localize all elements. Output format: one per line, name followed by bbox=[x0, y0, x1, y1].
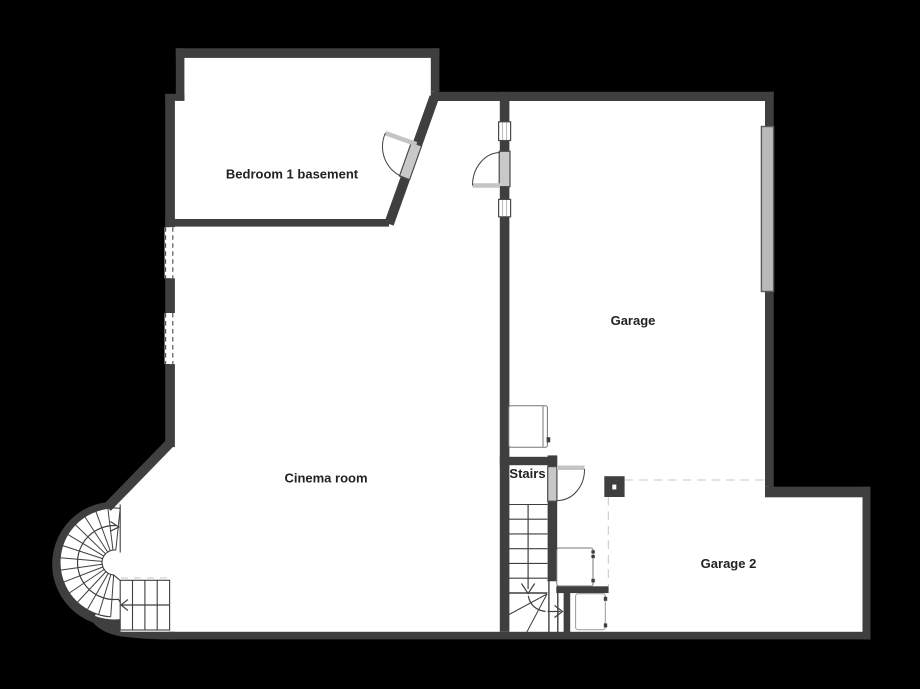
svg-text:Garage: Garage bbox=[611, 313, 656, 328]
svg-text:Cinema room: Cinema room bbox=[284, 471, 367, 486]
svg-text:Stairs: Stairs bbox=[509, 466, 545, 481]
svg-text:Garage 2: Garage 2 bbox=[701, 556, 757, 571]
svg-text:Bedroom 1 basement: Bedroom 1 basement bbox=[226, 167, 359, 182]
